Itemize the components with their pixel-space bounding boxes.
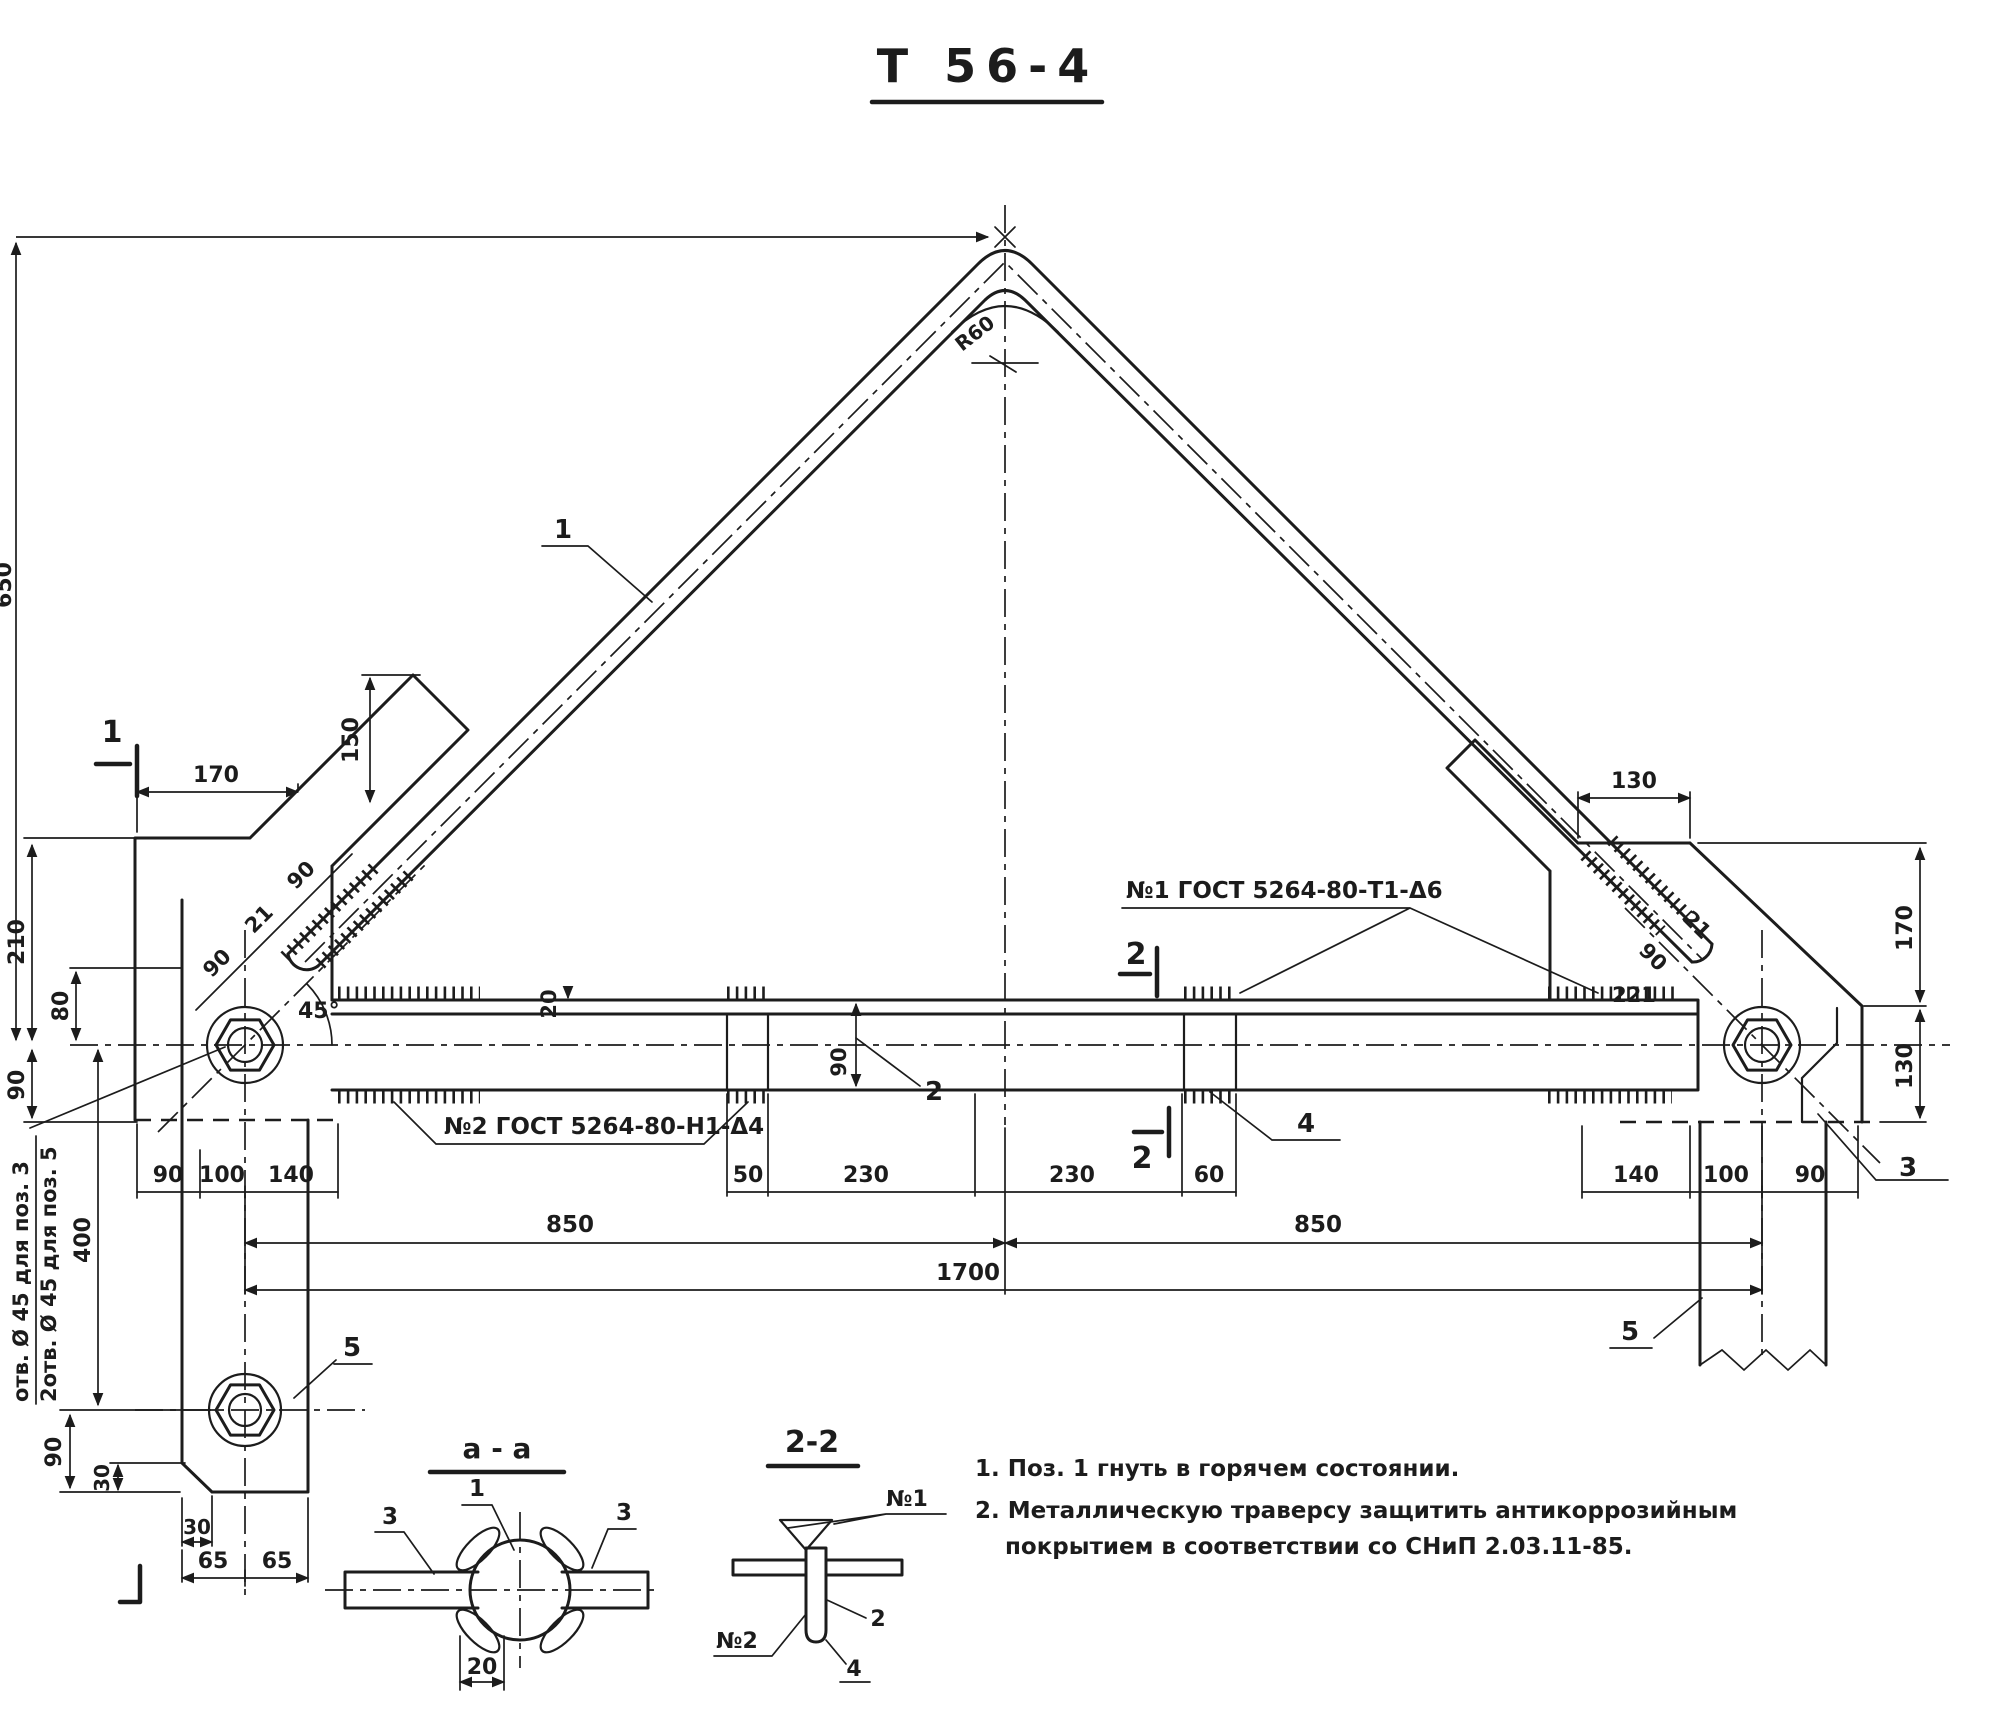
main-view: R60 650	[0, 205, 1950, 1602]
callout-pos5-left: 5	[294, 1333, 372, 1398]
dim-row-right-100: 100	[1703, 1163, 1749, 1188]
dim-row-mid-230b: 230	[1049, 1163, 1095, 1188]
dim-row-right-140: 140	[1613, 1163, 1659, 1188]
pos5-right-label: 5	[1621, 1317, 1639, 1347]
dim-bar-20: 20	[537, 989, 561, 1018]
right-plate-inner-chamfer	[1802, 1008, 1837, 1122]
section-1-label: 1	[102, 715, 123, 750]
dim-row-mid-230a: 230	[843, 1163, 889, 1188]
dim-rod-90b: 90	[282, 856, 320, 894]
right-bolt-axis-diag	[1625, 908, 1880, 1163]
stiffener-plates	[727, 1014, 1236, 1090]
dim-row-right-90: 90	[1795, 1163, 1826, 1188]
pos2-label: 2	[925, 1077, 943, 1107]
rod-left-tip	[288, 954, 318, 970]
dim-400: 400	[71, 1217, 96, 1263]
section-aa: а - а 1 3 3 20	[325, 1432, 655, 1690]
hole-note: отв. Ø 45 для поз. 3 2отв. Ø 45 для поз.…	[9, 1047, 225, 1404]
bend-radius-label: R60	[950, 310, 999, 356]
hole-note-line1: отв. Ø 45 для поз. 3	[9, 1161, 33, 1402]
bend-radius-leader	[990, 356, 1016, 372]
rod-centerline	[305, 262, 1702, 962]
hole-note-line2: 2отв. Ø 45 для поз. 5	[37, 1146, 61, 1402]
weld-label-n2: №2 ГОСТ 5264-80-Н1-Δ4	[444, 1114, 764, 1140]
drawing-title: Т 56-4	[877, 39, 1100, 93]
weld-label-n1: №1 ГОСТ 5264-80-Т1-Δ6	[1126, 878, 1443, 904]
s22-n2-label: №2	[716, 1629, 758, 1654]
dim-30-vert: 30	[90, 1464, 114, 1492]
s22-n1-label: №1	[886, 1487, 928, 1512]
note-line-1: 1. Поз. 1 гнуть в горячем состоянии.	[975, 1456, 1459, 1482]
weld-hatching	[285, 840, 1688, 1097]
callout-pos2: 2	[856, 1038, 943, 1107]
dim-row-left-140: 140	[268, 1163, 314, 1188]
section-marker-1-top: 1	[96, 715, 137, 796]
dim-130-bottom: 130	[1893, 1043, 1918, 1089]
dim-150: 150	[339, 717, 364, 763]
dim-rod-21: 21	[240, 900, 278, 938]
s22-pos2-label: 2	[870, 1607, 885, 1632]
blueprint-sheet: Т 56-4 R60 650	[0, 0, 2000, 1715]
pos4-label: 4	[1297, 1109, 1315, 1139]
aa-pos3-right-label: 3	[616, 1500, 632, 1526]
weld-note-n1: №1 ГОСТ 5264-80-Т1-Δ6	[1122, 878, 1598, 993]
section-22-title: 2-2	[785, 1425, 839, 1460]
pos5-left-label: 5	[343, 1333, 361, 1363]
dim-1700-total: 1700	[936, 1260, 1000, 1286]
notes-block: 1. Поз. 1 гнуть в горячем состоянии. 2. …	[975, 1456, 1737, 1560]
dim-850-left: 850	[546, 1212, 594, 1238]
dim-rod-90-right: 90	[1634, 938, 1672, 976]
dim-90-left: 90	[5, 1070, 30, 1101]
dim-rod-21-right: 21	[1678, 906, 1716, 944]
pos1-label: 1	[554, 515, 572, 545]
aa-dim-20: 20	[467, 1655, 498, 1680]
dim-plate-90: 90	[827, 1047, 851, 1076]
title-block: Т 56-4	[872, 39, 1102, 102]
dim-210: 210	[5, 919, 30, 965]
dim-650: 650	[0, 562, 17, 608]
dim-row-left-100: 100	[199, 1163, 245, 1188]
section-marker-2-top: 2	[1120, 937, 1157, 996]
dim-30-horiz: 30	[183, 1515, 211, 1539]
note-line-2: 2. Металлическую траверсу защитить антик…	[975, 1498, 1737, 1524]
s22-bars	[733, 1560, 902, 1575]
dim-80: 80	[49, 991, 74, 1022]
dim-850-right: 850	[1294, 1212, 1342, 1238]
section-marker-1-bottom	[120, 1566, 140, 1602]
note-line-3: покрытием в соответствии со СНиП 2.03.11…	[1005, 1534, 1633, 1560]
right-leg-break-line	[1700, 1350, 1826, 1370]
dim-221-right: 221	[1612, 983, 1656, 1007]
callout-pos1: 1	[542, 515, 652, 602]
aa-pos1-label: 1	[469, 1476, 485, 1502]
callout-pos5-right: 5	[1610, 1298, 1702, 1348]
s22-pos4-label: 4	[846, 1657, 861, 1682]
dim-130-top: 130	[1611, 769, 1657, 794]
dim-90-leg: 90	[42, 1437, 67, 1468]
dim-65-b: 65	[262, 1549, 293, 1574]
weld-note-n2: №2 ГОСТ 5264-80-Н1-Δ4	[394, 1102, 764, 1144]
dim-row-mid-60: 60	[1194, 1163, 1225, 1188]
section-aa-title: а - а	[463, 1432, 532, 1465]
section-marker-2-bottom: 2	[1132, 1108, 1169, 1176]
s22-plate	[806, 1548, 826, 1642]
rod-outer-edge	[288, 251, 1712, 955]
dim-65-a: 65	[198, 1549, 229, 1574]
left-plate-outline	[135, 675, 468, 1120]
dim-170-right: 170	[1893, 905, 1918, 951]
section-2-bottom-label: 2	[1132, 1141, 1153, 1176]
section-2-top-label: 2	[1126, 937, 1147, 972]
dim-row-left-90: 90	[153, 1163, 184, 1188]
section-22: 2-2 №1 2 №2 4	[714, 1425, 946, 1682]
callout-pos3: 3	[1818, 1114, 1948, 1183]
aa-pos3-left-label: 3	[382, 1504, 398, 1530]
drawing-canvas: Т 56-4 R60 650	[0, 0, 2000, 1715]
weld-label-n1-leader	[1122, 908, 1598, 993]
pos3-label: 3	[1899, 1153, 1917, 1183]
s22-weld-mark	[780, 1520, 832, 1550]
rod-right-tip	[1692, 944, 1712, 962]
dim-170: 170	[193, 763, 239, 788]
dim-row-mid-50: 50	[733, 1163, 764, 1188]
dim-angle-45: 45°	[298, 999, 340, 1024]
